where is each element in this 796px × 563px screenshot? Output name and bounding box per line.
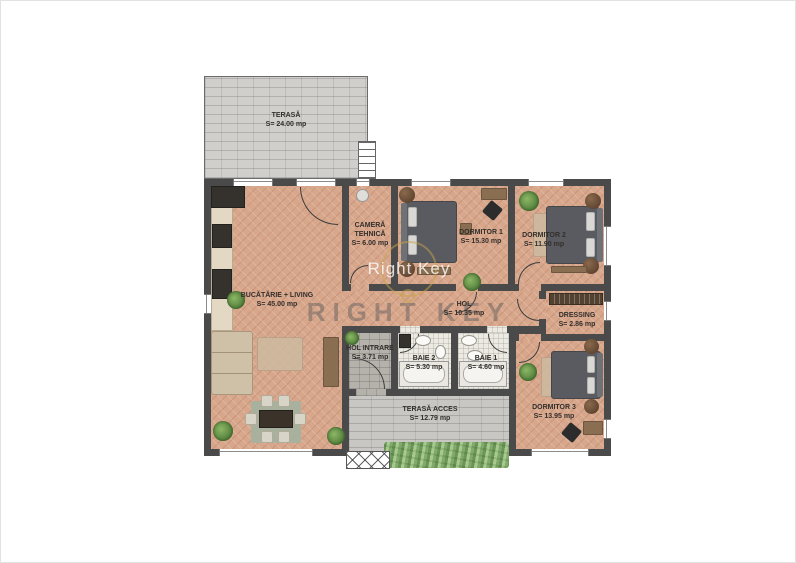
watermark-script: Right Key <box>321 259 497 279</box>
room-terasa-floor <box>204 76 368 179</box>
dining-chair <box>261 431 273 443</box>
hedge <box>384 442 509 468</box>
window <box>604 226 611 266</box>
door-opening-dressing <box>539 299 546 319</box>
window <box>411 179 451 186</box>
window <box>604 419 611 439</box>
dining-chair <box>294 413 306 425</box>
headboard <box>597 353 603 397</box>
pillow <box>586 212 595 231</box>
window <box>531 449 589 456</box>
floor-plan-page: Right Key RIGHT KEY TERASĂ S= 24.00 mp B… <box>0 0 796 563</box>
boiler <box>356 189 369 202</box>
living-rug <box>257 337 303 371</box>
toilet <box>435 345 446 359</box>
watermark-caps: RIGHT KEY <box>301 297 517 328</box>
window <box>604 301 611 321</box>
wardrobe <box>549 293 603 305</box>
terrace-door-window <box>296 179 336 186</box>
window <box>233 179 273 186</box>
pillow <box>587 356 595 373</box>
door-opening-dormitor-2 <box>519 284 541 291</box>
door-opening-entrance <box>356 389 386 396</box>
headboard <box>597 208 603 262</box>
dining-table <box>259 410 293 428</box>
window <box>204 294 211 314</box>
pillow <box>586 238 595 257</box>
pillow <box>587 377 595 394</box>
dining-chair <box>278 395 290 407</box>
plant <box>519 191 539 211</box>
fridge <box>212 224 232 248</box>
bathtub <box>399 361 449 387</box>
bed-bench <box>551 266 587 273</box>
plant <box>213 421 233 441</box>
pouf <box>584 399 599 414</box>
dining-chair <box>278 431 290 443</box>
door-opening-camera-tehnica <box>351 284 369 291</box>
pillow <box>408 207 417 227</box>
dining-chair <box>245 413 257 425</box>
pouf <box>585 193 601 209</box>
plant <box>327 427 345 445</box>
nightstand <box>460 223 472 235</box>
bathtub <box>459 361 507 387</box>
desk <box>481 188 507 200</box>
window <box>219 449 313 456</box>
sink <box>467 350 483 361</box>
terrace-stairs <box>358 141 376 179</box>
plant <box>345 331 359 345</box>
entrance-step <box>346 451 390 469</box>
bathroom-cabinet <box>399 334 411 348</box>
window <box>528 179 564 186</box>
dining-chair <box>261 395 273 407</box>
tv-unit <box>323 337 339 387</box>
sink <box>415 335 431 346</box>
door-opening-dormitor-3 <box>519 334 541 341</box>
sofa <box>211 331 253 395</box>
pouf <box>399 187 415 203</box>
pouf <box>584 339 599 354</box>
window <box>356 179 370 186</box>
plant <box>227 291 245 309</box>
sink <box>461 335 477 346</box>
plant <box>519 363 537 381</box>
kitchen-corner-unit <box>211 186 245 208</box>
desk <box>583 421 603 435</box>
